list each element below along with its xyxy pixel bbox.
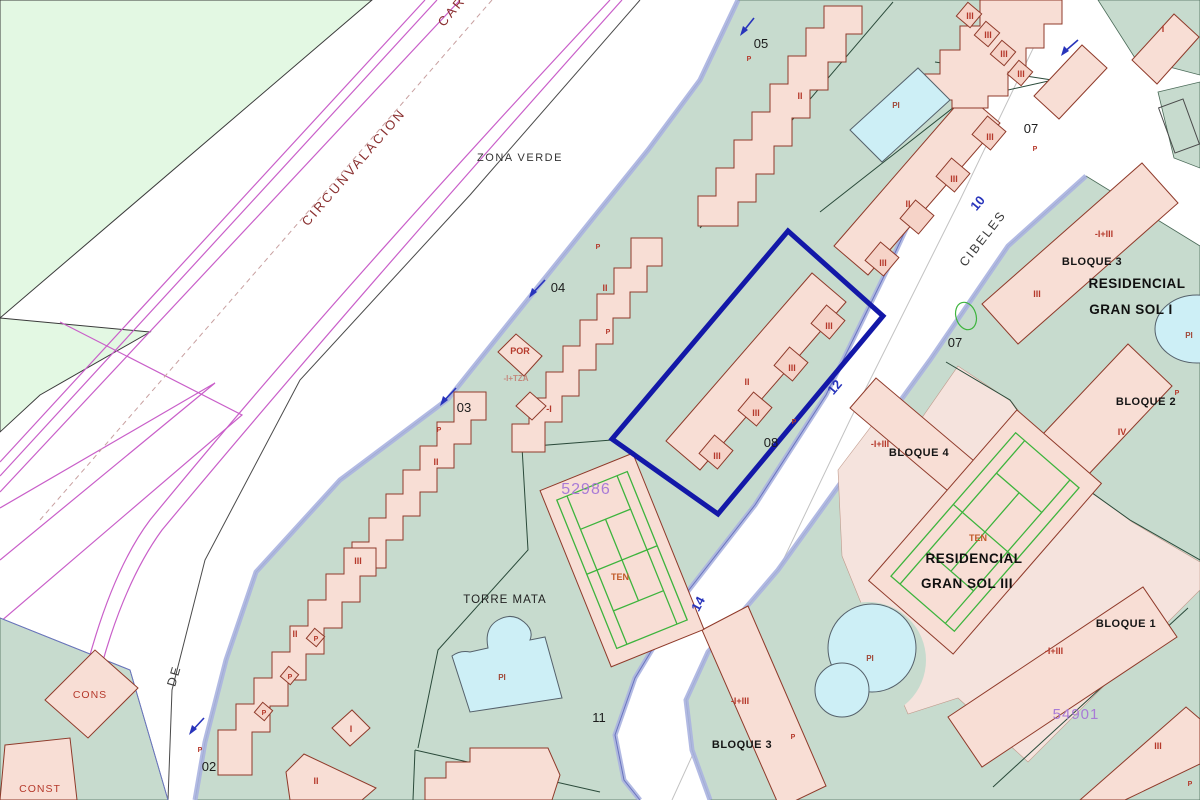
floor-label: II xyxy=(602,283,607,293)
block-label-bloque-2: BLOQUE 2 xyxy=(1116,396,1176,408)
floor-label: III xyxy=(984,30,992,40)
floor-label: P xyxy=(198,747,203,754)
floor-label: -I+III xyxy=(1045,646,1063,656)
block-label-bloque-3-south: BLOQUE 3 xyxy=(712,739,772,751)
floor-label: III xyxy=(1017,69,1025,79)
floor-label: III xyxy=(1000,49,1008,59)
zone-label-residencial-1: RESIDENCIAL xyxy=(1088,276,1185,291)
floor-label: II xyxy=(905,199,910,209)
floor-label: P xyxy=(262,710,267,717)
parcel-number-05: 05 xyxy=(754,36,768,51)
floor-label: I xyxy=(1162,24,1165,34)
floor-label: III xyxy=(752,408,760,418)
floor-label: III xyxy=(788,363,796,373)
block-label-bloque-4: BLOQUE 4 xyxy=(889,447,950,459)
tennis-label: TEN xyxy=(611,572,629,582)
floor-label: -I+III xyxy=(871,439,889,449)
block-label-bloque-1: BLOQUE 1 xyxy=(1096,618,1156,630)
pool-label: PI xyxy=(498,673,506,682)
zone-label-gran-sol-1: GRAN SOL I xyxy=(1089,302,1173,317)
floor-label: P xyxy=(288,674,293,681)
entrance-arrow-icon xyxy=(189,718,204,735)
pool-gran-sol-3-lobe xyxy=(815,663,869,717)
floor-label: P xyxy=(792,419,797,426)
floor-label: III xyxy=(354,556,362,566)
road-slip-line-magenta xyxy=(0,383,215,560)
parcel-number-07: 07 xyxy=(1024,121,1038,136)
block-label-bloque-3-north: BLOQUE 3 xyxy=(1062,256,1122,268)
zone-label-residencial-3: RESIDENCIAL xyxy=(925,551,1022,566)
floor-label: -I xyxy=(546,404,552,414)
construction-label-cons: CONS xyxy=(73,689,107,701)
tennis-label: TEN xyxy=(969,533,987,543)
floor-label: IV xyxy=(1118,427,1127,437)
floor-label: II xyxy=(313,776,318,786)
floor-label: I xyxy=(350,724,353,734)
floor-label: P xyxy=(747,56,752,63)
floor-label: P xyxy=(1188,781,1193,788)
floor-label: P xyxy=(1033,146,1038,153)
floor-label: III xyxy=(825,321,833,331)
floor-label: -I+III xyxy=(731,696,749,706)
floor-label: P xyxy=(791,734,796,741)
floor-label: II xyxy=(433,457,438,467)
pool-label: PI xyxy=(892,101,900,110)
floor-label: III xyxy=(986,132,994,142)
parcel-number-11: 11 xyxy=(592,710,606,725)
floor-label: P xyxy=(314,636,319,643)
green-area-top-left xyxy=(0,0,372,318)
street-label-car-partial: CAR xyxy=(435,0,469,29)
floor-label-por: POR xyxy=(510,346,530,356)
floor-label: P xyxy=(1175,390,1180,397)
parcel-number-08: 08 xyxy=(764,435,778,450)
floor-label: III xyxy=(713,451,721,461)
street-label-circunvalacion: CIRCUNVALACION xyxy=(299,105,409,228)
pool-label: PI xyxy=(866,654,874,663)
cadastral-map: CIRCUNVALACION CAR DE CIBELES 10 12 14 Z… xyxy=(0,0,1200,800)
floor-label: -I+III xyxy=(1095,229,1113,239)
pool-label: PI xyxy=(1185,331,1193,340)
floor-label: P xyxy=(596,244,601,251)
floor-label: P xyxy=(606,329,611,336)
zone-label-zona-verde: ZONA VERDE xyxy=(477,152,563,164)
parcel-number-07b: 07 xyxy=(948,335,962,350)
zone-label-torre-mata: TORRE MATA xyxy=(463,594,546,606)
floor-label: III xyxy=(950,174,958,184)
floor-label: III xyxy=(1154,741,1162,751)
parcel-code-52986: 52986 xyxy=(561,481,611,498)
street-label-de: DE xyxy=(164,664,183,688)
parcel-number-03: 03 xyxy=(457,400,471,415)
floor-label: III xyxy=(1033,289,1041,299)
parcel-number-02: 02 xyxy=(202,759,216,774)
parcel-number-04: 04 xyxy=(551,280,565,295)
green-wedge-left xyxy=(0,318,150,432)
cadastral-map-viewport: CIRCUNVALACION CAR DE CIBELES 10 12 14 Z… xyxy=(0,0,1200,800)
zone-label-gran-sol-3: GRAN SOL III xyxy=(921,576,1013,591)
floor-label: II xyxy=(797,91,802,101)
floor-label-tza: -I+TZA xyxy=(503,374,528,383)
floor-label: P xyxy=(437,427,442,434)
street-number-10: 10 xyxy=(967,193,988,214)
floor-label: III xyxy=(879,258,887,268)
parcel-code-54901: 54901 xyxy=(1053,706,1100,723)
floor-label: III xyxy=(966,11,974,21)
floor-label: II xyxy=(292,629,297,639)
floor-label: II xyxy=(744,377,749,387)
construction-label-const: CONST xyxy=(19,783,61,795)
